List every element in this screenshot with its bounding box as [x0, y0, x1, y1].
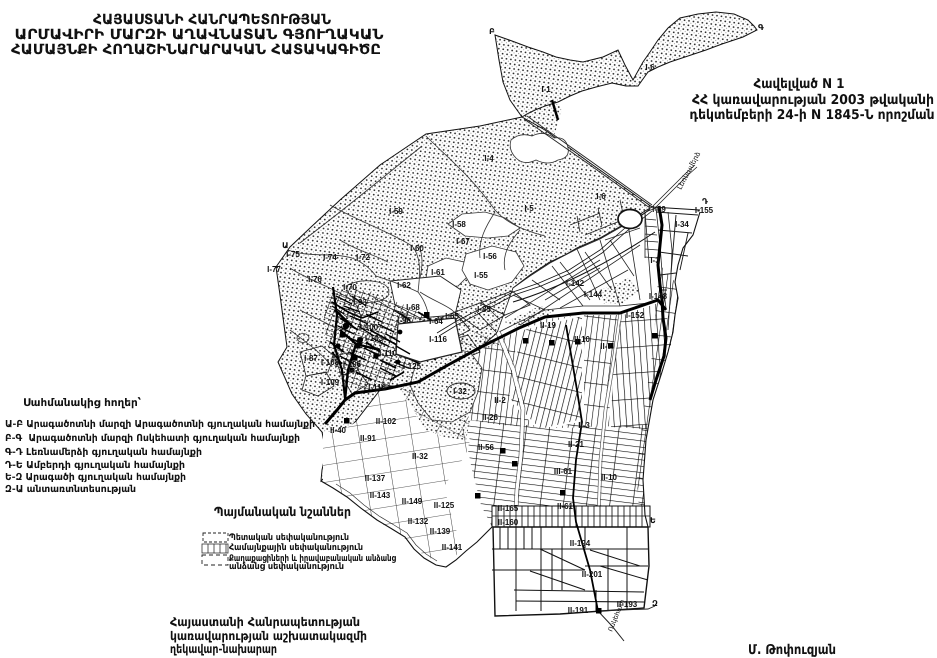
svg-text:III-61: III-61: [554, 467, 573, 476]
svg-text:II-149: II-149: [402, 497, 423, 506]
svg-text:I-4: I-4: [484, 154, 494, 163]
svg-text:I-62: I-62: [397, 281, 411, 290]
svg-text:I-3: I-3: [650, 256, 660, 265]
svg-text:II-7: II-7: [600, 342, 612, 351]
svg-text:I-75: I-75: [286, 250, 300, 259]
svg-text:I-58: I-58: [452, 220, 466, 229]
svg-text:II-40: II-40: [330, 426, 347, 435]
svg-text:II-201: II-201: [582, 570, 603, 579]
svg-text:I-103: I-103: [365, 334, 384, 343]
svg-text:II-141: II-141: [442, 543, 463, 552]
svg-text:I-116: I-116: [368, 383, 386, 392]
svg-text:II-26: II-26: [482, 413, 499, 422]
svg-text:I-155: I-155: [695, 206, 714, 215]
svg-text:I-142: I-142: [566, 279, 585, 288]
svg-text:II-3: II-3: [578, 421, 590, 430]
svg-text:I-106: I-106: [343, 360, 362, 369]
svg-text:II-139: II-139: [430, 527, 451, 536]
svg-text:I-61: I-61: [431, 268, 445, 277]
svg-text:I-56: I-56: [483, 252, 497, 261]
svg-text:I-60: I-60: [410, 244, 424, 253]
svg-text:I-67: I-67: [456, 237, 470, 246]
svg-text:I-100: I-100: [360, 323, 379, 332]
svg-text:II-137: II-137: [365, 474, 386, 483]
svg-text:I-34: I-34: [675, 220, 689, 229]
svg-text:II-160: II-160: [498, 518, 519, 527]
svg-text:I-70: I-70: [343, 283, 357, 292]
svg-text:II-61: II-61: [557, 502, 574, 511]
svg-text:II-125: II-125: [434, 501, 455, 510]
svg-text:II-10: II-10: [601, 473, 618, 482]
svg-text:I-110: I-110: [379, 349, 397, 358]
svg-text:I-74: I-74: [323, 253, 337, 262]
svg-text:II-10: II-10: [574, 335, 591, 344]
svg-text:II-193: II-193: [617, 600, 638, 609]
svg-text:I-72: I-72: [356, 253, 370, 262]
svg-text:I-68: I-68: [406, 303, 420, 312]
svg-text:I-64: I-64: [429, 317, 443, 326]
svg-text:I-6: I-6: [645, 63, 655, 72]
svg-text:I-144: I-144: [584, 290, 603, 299]
svg-text:I-76: I-76: [308, 275, 322, 284]
svg-text:II-102: II-102: [376, 417, 397, 426]
svg-text:I-6: I-6: [596, 192, 606, 201]
svg-text:I-87: I-87: [304, 354, 318, 363]
svg-text:I-77: I-77: [267, 265, 281, 274]
svg-text:I-109: I-109: [321, 378, 340, 387]
svg-text:II-191: II-191: [568, 606, 589, 615]
svg-text:II-21: II-21: [568, 440, 585, 449]
svg-text:I-32: I-32: [453, 387, 467, 396]
svg-text:I-93: I-93: [353, 298, 367, 307]
svg-text:I-55: I-55: [474, 271, 488, 280]
svg-text:I-85: I-85: [477, 305, 491, 314]
svg-text:I-69: I-69: [652, 205, 666, 214]
svg-text:I-65: I-65: [445, 312, 459, 321]
svg-text:I-148: I-148: [649, 292, 668, 301]
svg-text:II-143: II-143: [370, 491, 391, 500]
svg-text:I-59: I-59: [389, 207, 403, 216]
svg-text:I-96: I-96: [397, 316, 411, 325]
svg-text:I-116: I-116: [429, 335, 447, 344]
svg-text:I-5: I-5: [524, 204, 534, 213]
svg-text:II-32: II-32: [412, 452, 429, 461]
svg-text:II-132: II-132: [408, 517, 429, 526]
svg-text:I-1: I-1: [541, 85, 551, 94]
svg-text:II-2: II-2: [494, 396, 506, 405]
svg-text:II-56: II-56: [478, 443, 495, 452]
svg-text:II-91: II-91: [360, 434, 377, 443]
svg-text:I-152: I-152: [626, 311, 645, 320]
svg-text:II-19: II-19: [540, 321, 557, 330]
svg-text:I-125: I-125: [403, 362, 422, 371]
svg-text:II-194: II-194: [570, 539, 591, 548]
svg-text:I-108: I-108: [321, 358, 340, 367]
svg-text:II-165: II-165: [498, 504, 519, 513]
